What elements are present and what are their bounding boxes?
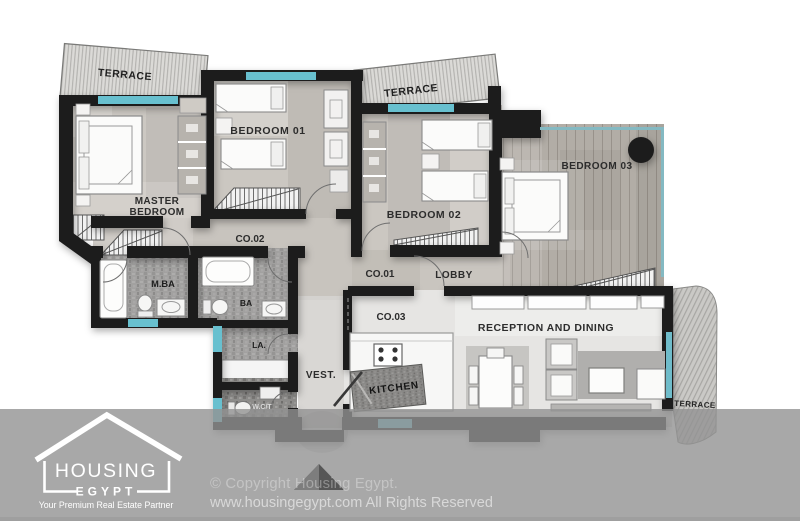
svg-text:CO.02: CO.02 (236, 234, 265, 245)
svg-text:BEDROOM 03: BEDROOM 03 (561, 161, 632, 172)
svg-text:www.housingegypt.com All Right: www.housingegypt.com All Rights Reserved (209, 495, 493, 511)
svg-text:CO.03: CO.03 (377, 312, 406, 323)
svg-text:© Copyright Housing Egypt.: © Copyright Housing Egypt. (210, 476, 398, 492)
svg-text:BEDROOM 02: BEDROOM 02 (387, 209, 461, 221)
svg-text:BEDROOM: BEDROOM (129, 207, 184, 218)
svg-text:M.BA: M.BA (151, 279, 175, 289)
svg-text:HOUSING: HOUSING (55, 460, 157, 482)
svg-text:LA.: LA. (252, 340, 266, 350)
svg-text:EGYPT: EGYPT (76, 485, 137, 499)
svg-text:VEST.: VEST. (306, 370, 336, 381)
svg-text:Your Premium Real Estate Partn: Your Premium Real Estate Partner (39, 500, 174, 510)
svg-text:BA: BA (240, 298, 252, 308)
svg-text:MASTER: MASTER (135, 196, 180, 207)
svg-text:RECEPTION AND DINING: RECEPTION AND DINING (478, 322, 614, 334)
svg-text:LOBBY: LOBBY (435, 270, 473, 281)
svg-text:BEDROOM 01: BEDROOM 01 (230, 125, 305, 137)
svg-text:CO.01: CO.01 (366, 269, 395, 280)
